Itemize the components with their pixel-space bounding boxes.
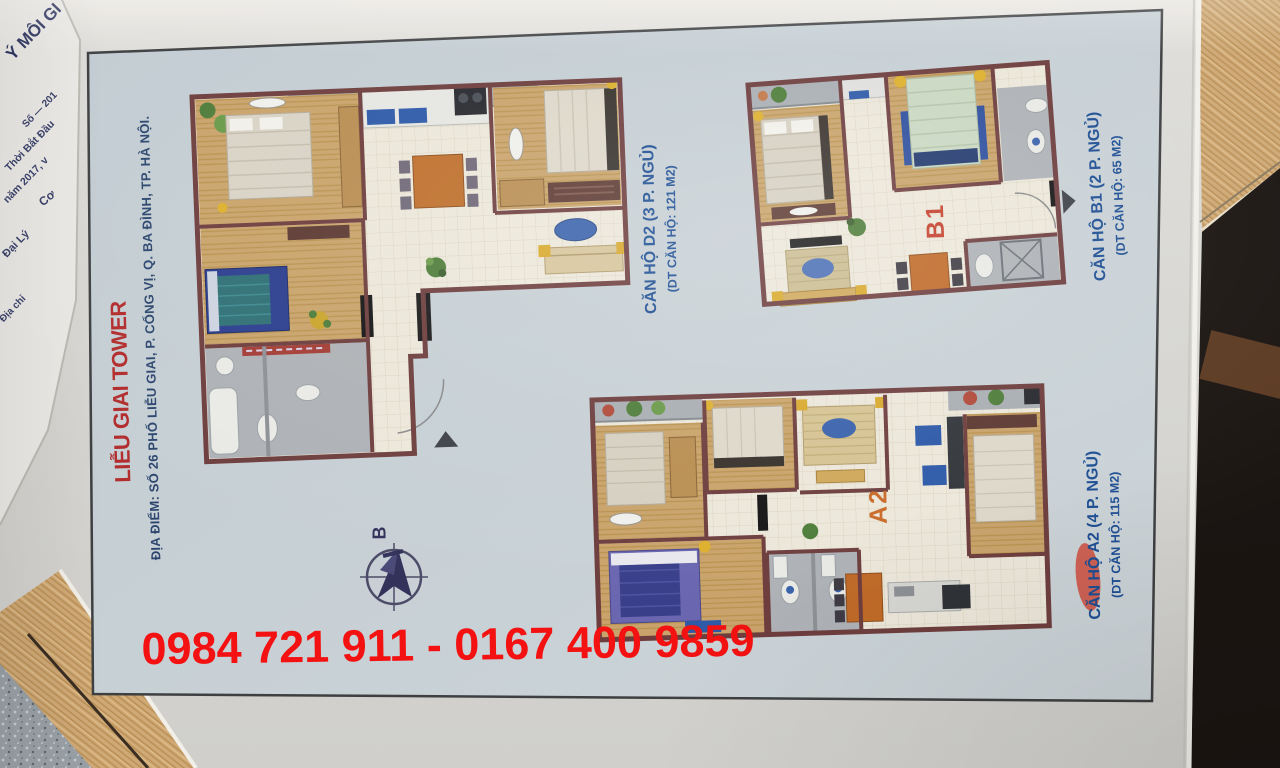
- floorplan-a2: [592, 386, 1049, 640]
- dining-table: [846, 573, 883, 622]
- wardrobe: [669, 437, 697, 498]
- kitchen-counter: [947, 416, 965, 488]
- dining-table: [413, 154, 465, 208]
- apartment-a2-area: (DT CĂN HỘ: 115 M2): [1105, 450, 1127, 619]
- bathtub: [209, 387, 240, 454]
- unit-code-a2: A2: [864, 488, 894, 524]
- phone-number: 0984 721 911 - 0167 400 9859: [141, 615, 755, 676]
- stove-icon: [454, 86, 487, 115]
- bathroom-floor: [997, 85, 1054, 181]
- sofa: [544, 245, 623, 274]
- apartment-label-a2: CĂN HỘ A2 (4 P. NGỦ) (DT CĂN HỘ: 115 M2): [1081, 450, 1127, 620]
- shadow-region: [1191, 168, 1280, 768]
- sink-icon: [215, 357, 234, 376]
- unit-code-b1: B1: [921, 203, 951, 240]
- door-jamb: [757, 495, 768, 531]
- wardrobe: [339, 106, 363, 207]
- page-title: LIỄU GIAI TOWER: [106, 301, 137, 483]
- apartment-a2-name: CĂN HỘ A2 (4 P. NGỦ): [1081, 451, 1108, 620]
- apartment-d2-area: (DT CĂN HỘ: 121 M2): [661, 144, 683, 314]
- floorplan-b1: [748, 61, 1082, 307]
- apartment-label-d2: CĂN HỘ D2 (3 P. NGỦ) (DT CĂN HỘ: 121 M2): [637, 144, 683, 314]
- apartment-d2-name: CĂN HỘ D2 (3 P. NGỦ): [637, 144, 664, 314]
- dining-table: [909, 253, 950, 294]
- bed: [605, 432, 665, 506]
- photo-of-floorplan-flyer: LIỄU GIAI TOWER ĐỊA ĐIỂM: SỐ 26 PHỐ LIỄU…: [0, 0, 1280, 768]
- compass-north-label: B: [370, 527, 391, 540]
- apartment-label-b1: CĂN HỘ B1 (2 P. NGỦ) (DT CĂN HỘ: 65 M2): [1082, 110, 1132, 281]
- fridge-icon: [915, 425, 942, 446]
